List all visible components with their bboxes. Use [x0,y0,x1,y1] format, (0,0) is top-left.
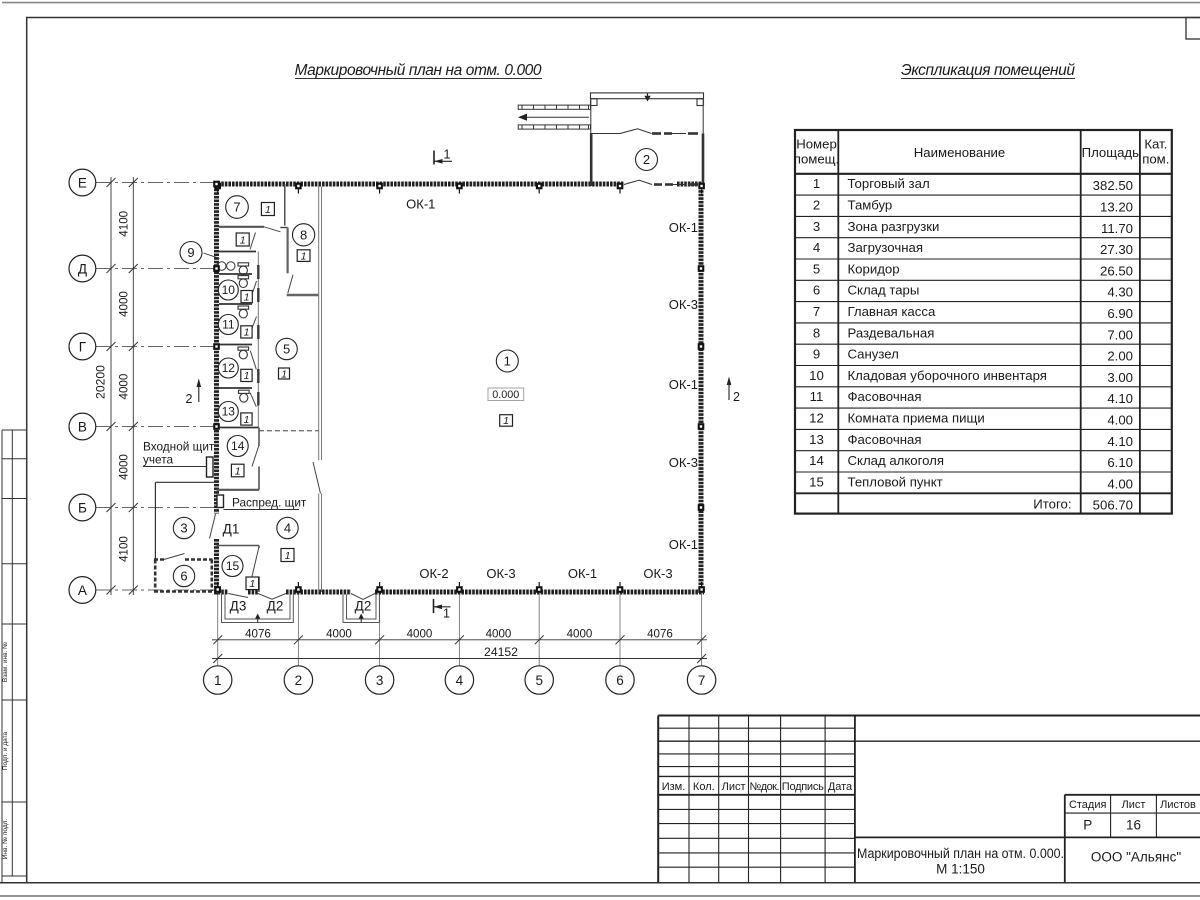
svg-text:Главная касса: Главная касса [848,304,936,319]
svg-text:11.70: 11.70 [1101,221,1133,236]
svg-text:4076: 4076 [245,628,271,641]
svg-text:Фасовочная: Фасовочная [848,432,922,447]
svg-text:5: 5 [283,342,290,357]
svg-text:1: 1 [244,414,250,426]
svg-text:4000: 4000 [486,628,512,641]
svg-text:5: 5 [813,261,820,276]
svg-text:Раздевальная: Раздевальная [848,325,935,340]
svg-text:Листов: Листов [1160,799,1196,811]
svg-text:Подпись: Подпись [782,781,824,793]
svg-text:1: 1 [503,415,509,427]
svg-text:11: 11 [222,318,235,332]
svg-text:1: 1 [301,250,307,262]
svg-text:13.20: 13.20 [1100,200,1133,215]
svg-text:4.30: 4.30 [1107,285,1133,300]
svg-text:1: 1 [244,327,250,339]
svg-text:Д1: Д1 [223,522,240,537]
svg-text:12: 12 [222,361,236,375]
svg-text:6.90: 6.90 [1107,306,1133,321]
svg-text:2: 2 [643,152,650,167]
svg-text:506.70: 506.70 [1093,498,1133,513]
svg-text:4000: 4000 [118,291,131,317]
svg-text:Подп. и дата: Подп. и дата [2,731,9,770]
svg-text:2: 2 [295,673,303,688]
svg-text:1: 1 [235,465,241,477]
svg-text:4000: 4000 [118,374,131,400]
svg-text:4000: 4000 [567,628,593,641]
svg-text:1: 1 [265,204,271,216]
svg-text:0.000: 0.000 [492,389,519,401]
svg-text:10: 10 [222,283,236,297]
svg-text:Лист: Лист [722,781,746,793]
svg-text:Загрузочная: Загрузочная [848,240,923,255]
svg-text:16: 16 [1126,818,1141,833]
svg-text:Р: Р [1083,818,1092,833]
svg-text:Лист: Лист [1122,799,1146,811]
svg-text:Санузел: Санузел [848,347,899,362]
svg-text:4: 4 [813,240,820,255]
svg-text:7: 7 [813,304,820,319]
svg-text:Склад тары: Склад тары [848,283,920,298]
svg-text:Кол.: Кол. [693,781,715,793]
svg-text:4.10: 4.10 [1107,434,1133,449]
svg-text:4.00: 4.00 [1107,413,1133,428]
svg-text:Инв. № подл.: Инв. № подл. [2,819,9,860]
svg-text:Экспликация помещений: Экспликация помещений [901,62,1075,79]
svg-text:27.30: 27.30 [1100,242,1133,257]
svg-text:1: 1 [443,607,450,621]
svg-text:Д3: Д3 [230,599,247,614]
svg-text:1: 1 [281,368,287,380]
svg-text:ОК-1: ОК-1 [669,537,698,552]
svg-text:5: 5 [535,673,543,688]
svg-text:14: 14 [809,453,824,468]
svg-text:Фасовочная: Фасовочная [848,389,922,404]
svg-text:ОК-1: ОК-1 [568,566,597,581]
svg-text:4: 4 [456,673,464,688]
svg-text:26.50: 26.50 [1100,263,1133,278]
svg-text:Кладовая уборочного инвентаря: Кладовая уборочного инвентаря [848,368,1047,383]
svg-text:Дата: Дата [828,781,853,793]
svg-text:М 1:150: М 1:150 [936,862,985,877]
svg-text:4000: 4000 [326,628,352,641]
svg-text:ОК-1: ОК-1 [406,197,435,212]
svg-text:Маркировочный план на отм. 0.0: Маркировочный план на отм. 0.000. [857,846,1064,861]
svg-text:помещ.: помещ. [794,152,839,167]
svg-text:1: 1 [214,673,222,688]
svg-text:Наименование: Наименование [914,145,1005,160]
svg-text:Кат.: Кат. [1144,137,1167,152]
svg-text:Тамбур: Тамбур [848,198,893,213]
svg-text:13: 13 [222,405,236,419]
svg-text:2: 2 [813,198,820,213]
svg-text:Склад алкоголя: Склад алкоголя [848,453,945,468]
svg-text:ОК-3: ОК-3 [486,566,515,581]
svg-text:Б: Б [78,500,87,515]
svg-text:Торговый зал: Торговый зал [848,176,930,191]
svg-text:13: 13 [809,432,824,447]
svg-text:7: 7 [233,200,240,215]
svg-text:15: 15 [809,474,824,489]
svg-text:Стадия: Стадия [1069,799,1107,811]
svg-text:ОК-1: ОК-1 [669,220,698,235]
svg-text:1: 1 [240,234,246,246]
svg-text:4076: 4076 [647,628,673,641]
svg-text:Входной щит: Входной щит [143,440,215,454]
svg-text:3: 3 [376,673,384,688]
svg-text:А: А [78,583,87,598]
svg-text:2: 2 [733,390,740,404]
svg-text:4: 4 [284,521,291,536]
svg-text:Г: Г [79,339,87,354]
svg-text:9: 9 [813,347,820,362]
svg-text:3.00: 3.00 [1107,370,1133,385]
svg-text:6: 6 [813,283,820,298]
svg-text:6: 6 [616,673,624,688]
svg-text:2: 2 [186,392,193,406]
svg-text:Тепловой пункт: Тепловой пункт [848,474,943,489]
svg-text:ОК-3: ОК-3 [669,455,698,470]
svg-text:4.00: 4.00 [1107,476,1133,491]
svg-text:ОК-2: ОК-2 [419,566,448,581]
svg-text:Маркировочный план на отм. 0.0: Маркировочный план на отм. 0.000 [295,62,542,79]
svg-text:10: 10 [809,368,824,383]
svg-text:Коридор: Коридор [848,261,900,276]
svg-text:№док.: №док. [750,781,780,793]
svg-text:Д2: Д2 [267,599,284,614]
svg-text:3: 3 [813,219,820,234]
svg-text:ОК-3: ОК-3 [669,297,698,312]
svg-text:15: 15 [226,559,240,573]
svg-text:1: 1 [444,148,451,162]
svg-text:Распред. щит: Распред. щит [232,496,307,510]
svg-text:382.50: 382.50 [1093,178,1133,193]
svg-text:Итого:: Итого: [1033,497,1071,512]
svg-text:1: 1 [244,370,250,382]
svg-text:14: 14 [231,439,245,453]
svg-text:ООО "Альянс": ООО "Альянс" [1091,850,1181,865]
svg-text:ОК-3: ОК-3 [643,566,672,581]
svg-text:3: 3 [180,521,187,536]
svg-text:1: 1 [813,176,820,191]
svg-text:7: 7 [698,673,706,688]
svg-text:11: 11 [810,389,824,404]
svg-text:6: 6 [180,569,187,584]
svg-text:4100: 4100 [118,536,131,562]
svg-text:6.10: 6.10 [1107,455,1133,470]
svg-text:24152: 24152 [484,645,518,659]
svg-text:8: 8 [300,227,307,242]
svg-text:учета: учета [143,453,173,467]
svg-text:1: 1 [285,550,291,562]
svg-text:7.00: 7.00 [1107,327,1133,342]
svg-text:Д2: Д2 [355,599,372,614]
svg-text:12: 12 [809,411,824,426]
svg-text:Зона разгрузки: Зона разгрузки [848,219,940,234]
svg-text:Площадь: Площадь [1082,145,1140,160]
svg-text:4100: 4100 [118,211,131,237]
svg-text:4000: 4000 [118,454,131,480]
svg-text:Комната приема пищи: Комната приема пищи [848,411,985,426]
svg-text:2.00: 2.00 [1107,349,1133,364]
svg-text:Взам. инв. №: Взам. инв. № [2,642,9,682]
svg-text:1: 1 [249,578,255,590]
svg-text:20200: 20200 [94,365,108,399]
svg-text:ОК-1: ОК-1 [669,377,698,392]
svg-text:4000: 4000 [407,628,433,641]
svg-text:1: 1 [504,354,511,369]
svg-text:Д: Д [78,261,87,276]
svg-text:4.10: 4.10 [1107,391,1133,406]
svg-text:Е: Е [78,175,87,190]
svg-text:1: 1 [244,291,250,303]
svg-text:9: 9 [187,245,194,260]
svg-text:Номер: Номер [796,137,837,152]
svg-text:8: 8 [813,325,820,340]
svg-text:В: В [78,419,87,434]
svg-text:Изм.: Изм. [662,781,686,793]
svg-text:пом.: пом. [1142,152,1169,167]
